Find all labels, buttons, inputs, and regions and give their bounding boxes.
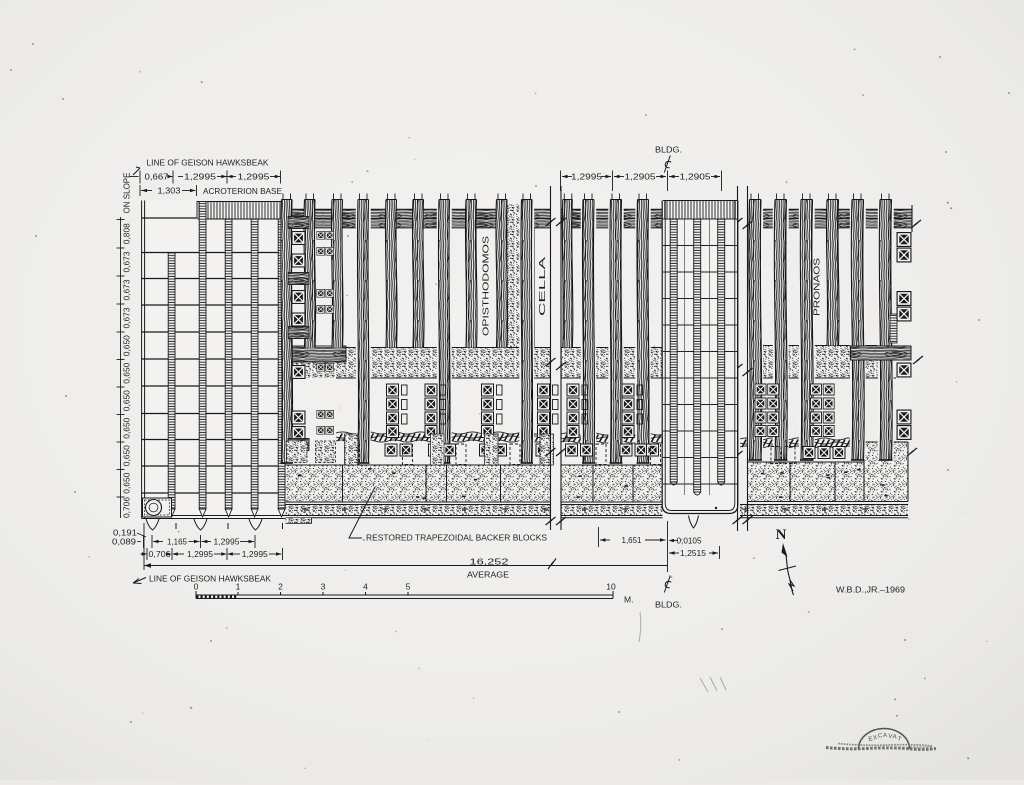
svg-text:1,2905: 1,2905 <box>625 172 656 182</box>
svg-text:0: 0 <box>194 582 199 592</box>
svg-text:1,2905: 1,2905 <box>680 172 711 182</box>
svg-text:0,808: 0,808 <box>122 223 131 245</box>
svg-text:0,650: 0,650 <box>122 390 131 412</box>
svg-text:1,165: 1,165 <box>167 537 187 547</box>
svg-text:1,651: 1,651 <box>622 535 642 545</box>
svg-text:CA: CA <box>878 732 889 740</box>
svg-text:OPISTHODOMOS: OPISTHODOMOS <box>482 235 491 336</box>
svg-text:1,2995: 1,2995 <box>214 537 240 547</box>
svg-text:W.B.D.,JR.–1969: W.B.D.,JR.–1969 <box>836 585 905 595</box>
svg-text:LINE OF GEISON HAWKSBEAK: LINE OF GEISON HAWKSBEAK <box>147 158 269 168</box>
svg-text:1,303: 1,303 <box>158 186 181 196</box>
svg-text:0,667: 0,667 <box>145 172 169 182</box>
svg-text:0,650: 0,650 <box>122 417 131 439</box>
svg-text:AVERAGE: AVERAGE <box>467 570 509 580</box>
svg-text:1,2995: 1,2995 <box>187 549 213 559</box>
svg-text:5: 5 <box>406 582 411 592</box>
svg-text:3: 3 <box>321 582 326 592</box>
svg-text:1,2995: 1,2995 <box>238 172 270 182</box>
svg-text:0,650: 0,650 <box>122 472 131 494</box>
svg-text:16,252: 16,252 <box>470 557 510 567</box>
svg-text:1: 1 <box>236 582 241 592</box>
svg-text:0,673: 0,673 <box>122 307 131 329</box>
svg-text:BLDG.: BLDG. <box>655 145 682 155</box>
svg-text:2: 2 <box>278 582 283 592</box>
svg-text:N: N <box>776 527 787 543</box>
svg-text:0,673: 0,673 <box>122 251 131 273</box>
svg-text:1,2995: 1,2995 <box>571 172 602 182</box>
svg-text:BLDG.: BLDG. <box>655 600 682 610</box>
svg-text:CELLA: CELLA <box>537 256 547 316</box>
svg-text:0,650: 0,650 <box>122 335 131 357</box>
svg-text:0,706: 0,706 <box>149 549 171 559</box>
svg-text:1,2515: 1,2515 <box>680 548 706 558</box>
svg-text:0,673: 0,673 <box>122 279 131 301</box>
svg-text:1,2995: 1,2995 <box>184 172 216 182</box>
svg-text:RESTORED TRAPEZOIDAL BACKER BL: RESTORED TRAPEZOIDAL BACKER BLOCKS <box>366 533 547 543</box>
svg-text:LINE OF GEISON HAWKSBEAK: LINE OF GEISON HAWKSBEAK <box>149 574 271 584</box>
svg-text:0,089: 0,089 <box>112 537 136 547</box>
svg-text:0,650: 0,650 <box>122 362 131 384</box>
svg-text:1,2995: 1,2995 <box>242 549 268 559</box>
svg-text:0,0105: 0,0105 <box>677 536 702 546</box>
svg-text:10: 10 <box>606 582 616 592</box>
svg-text:ACROTERION BASE: ACROTERION BASE <box>203 186 282 196</box>
svg-text:M.: M. <box>624 595 634 605</box>
svg-text:0,706: 0,706 <box>122 496 131 518</box>
svg-text:ON SLOPE: ON SLOPE <box>122 172 132 213</box>
svg-text:4: 4 <box>363 582 368 592</box>
svg-text:0,650: 0,650 <box>122 445 131 467</box>
svg-text:PRONAOS: PRONAOS <box>812 257 822 316</box>
